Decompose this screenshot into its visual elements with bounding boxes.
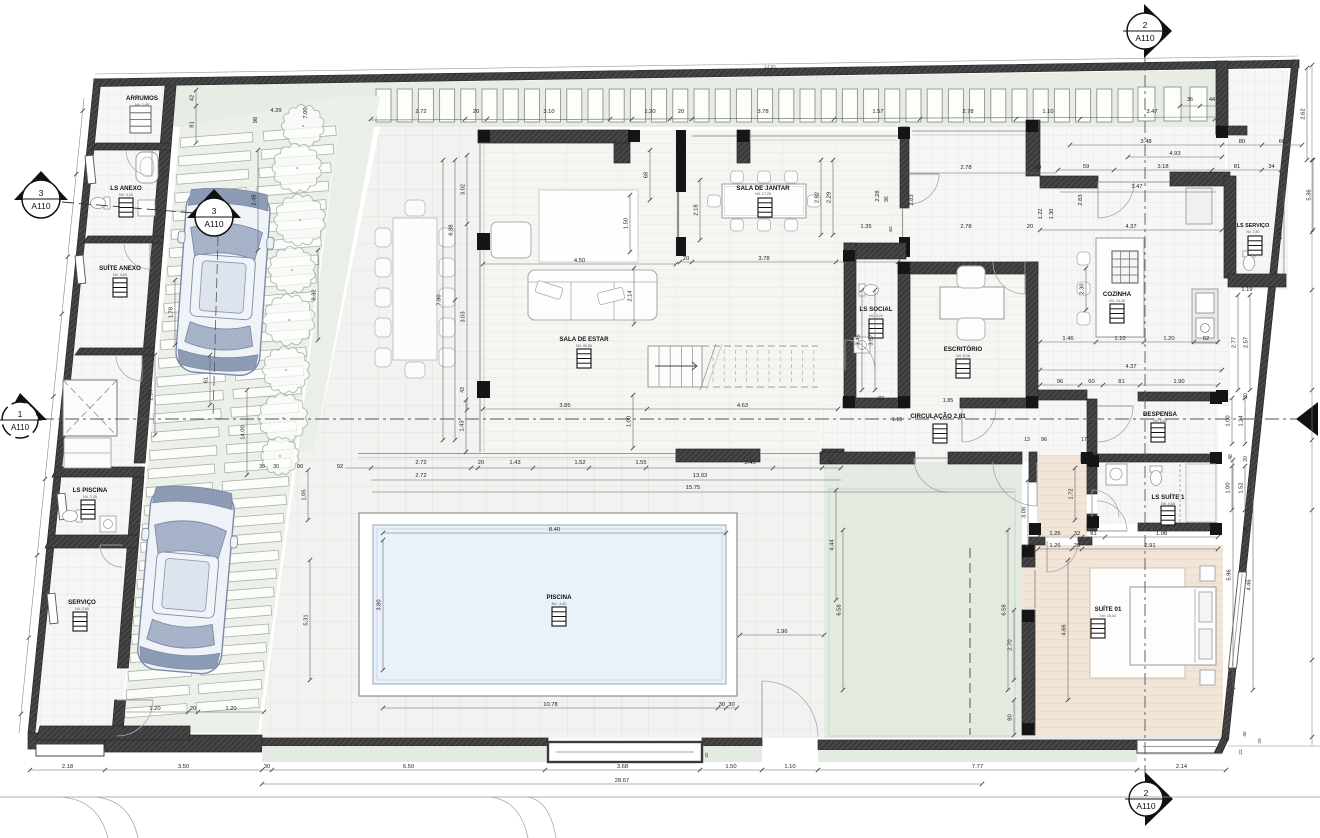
svg-text:1.57: 1.57 xyxy=(872,109,883,115)
svg-text:SUÍTE 01: SUÍTE 01 xyxy=(1095,605,1122,613)
svg-text:NV. 4,60: NV. 4,60 xyxy=(1161,502,1175,506)
svg-text:3.78: 3.78 xyxy=(757,109,768,115)
svg-text:4.37: 4.37 xyxy=(1125,224,1136,230)
svg-text:96: 96 xyxy=(1001,398,1007,404)
svg-text:34: 34 xyxy=(1268,164,1275,170)
svg-text:2.48: 2.48 xyxy=(252,194,258,205)
svg-text:2.18: 2.18 xyxy=(694,204,700,215)
svg-text:80: 80 xyxy=(1239,139,1245,145)
svg-text:3.50: 3.50 xyxy=(178,764,189,770)
svg-text:3.68: 3.68 xyxy=(617,764,628,770)
svg-text:82: 82 xyxy=(878,396,884,402)
svg-text:NV. 2,65: NV. 2,65 xyxy=(75,607,89,611)
svg-text:32: 32 xyxy=(1074,531,1080,537)
svg-text:20: 20 xyxy=(900,396,906,402)
svg-text:3.10: 3.10 xyxy=(543,109,554,115)
svg-text:1.19: 1.19 xyxy=(1241,287,1252,293)
svg-text:60: 60 xyxy=(1088,379,1094,385)
svg-text:LS ANEXO: LS ANEXO xyxy=(110,185,142,192)
svg-text:CIRCULAÇÃO 2,81: CIRCULAÇÃO 2,81 xyxy=(910,413,966,420)
svg-text:2.14: 2.14 xyxy=(1176,764,1188,770)
svg-text:1.10: 1.10 xyxy=(1114,336,1125,342)
svg-text:1.10: 1.10 xyxy=(1042,109,1053,115)
svg-text:1.43: 1.43 xyxy=(460,420,466,431)
svg-text:NV. 17,25: NV. 17,25 xyxy=(755,192,771,196)
svg-text:A110: A110 xyxy=(31,201,50,211)
svg-text:20: 20 xyxy=(1243,393,1249,399)
svg-text:3.57: 3.57 xyxy=(869,334,875,345)
svg-text:2.72: 2.72 xyxy=(415,473,426,479)
svg-text:2.72: 2.72 xyxy=(415,460,426,466)
svg-text:A110: A110 xyxy=(1136,801,1155,811)
svg-text:4.37: 4.37 xyxy=(1125,364,1136,370)
svg-text:6.50: 6.50 xyxy=(403,764,414,770)
svg-text:66: 66 xyxy=(1279,139,1285,145)
svg-text:20: 20 xyxy=(478,460,484,466)
svg-text:30: 30 xyxy=(273,464,279,470)
svg-text:3.08: 3.08 xyxy=(1022,507,1028,518)
svg-text:COZINHA: COZINHA xyxy=(1103,291,1132,298)
svg-text:62: 62 xyxy=(888,226,894,232)
svg-text:2.78: 2.78 xyxy=(962,109,973,115)
svg-text:NV. 2,04: NV. 2,04 xyxy=(1153,419,1167,423)
svg-text:17: 17 xyxy=(1081,437,1087,443)
svg-text:1.98: 1.98 xyxy=(1156,531,1167,537)
svg-text:20: 20 xyxy=(1027,224,1033,230)
svg-text:1.52: 1.52 xyxy=(574,460,585,466)
svg-text:2.78: 2.78 xyxy=(960,165,971,171)
svg-text:SALA DE JANTAR: SALA DE JANTAR xyxy=(736,185,790,192)
svg-text:10.78: 10.78 xyxy=(543,702,558,708)
svg-text:14.50: 14.50 xyxy=(764,64,776,69)
svg-text:5.96: 5.96 xyxy=(1227,569,1233,580)
svg-text:30: 30 xyxy=(264,764,270,770)
svg-text:DESPENSA: DESPENSA xyxy=(1143,411,1178,418)
svg-text:3.03: 3.03 xyxy=(461,311,467,322)
svg-text:1.78: 1.78 xyxy=(169,307,175,318)
svg-text:8.40: 8.40 xyxy=(549,527,560,533)
svg-text:2.78: 2.78 xyxy=(960,224,971,230)
svg-text:2.28: 2.28 xyxy=(875,190,881,201)
svg-text:22: 22 xyxy=(1238,749,1243,755)
svg-text:1.00: 1.00 xyxy=(1226,415,1232,426)
svg-text:4.44: 4.44 xyxy=(830,539,836,551)
svg-text:6.88: 6.88 xyxy=(449,224,455,235)
svg-text:8.32: 8.32 xyxy=(312,289,318,300)
svg-text:2.53: 2.53 xyxy=(1278,228,1284,239)
svg-text:3: 3 xyxy=(212,206,217,216)
svg-text:2.83: 2.83 xyxy=(909,194,915,205)
svg-text:3.45: 3.45 xyxy=(744,460,755,466)
svg-text:1.90: 1.90 xyxy=(1173,379,1184,385)
svg-text:2.57: 2.57 xyxy=(1244,337,1250,348)
svg-text:7.90: 7.90 xyxy=(437,294,443,305)
svg-text:1.26: 1.26 xyxy=(1049,531,1060,537)
svg-text:LS SOCIAL: LS SOCIAL xyxy=(859,306,892,313)
svg-text:1.10: 1.10 xyxy=(784,764,795,770)
svg-text:6.58: 6.58 xyxy=(1002,604,1008,615)
svg-text:61: 61 xyxy=(204,377,210,383)
svg-text:6.58: 6.58 xyxy=(837,604,843,615)
svg-text:NV. 1,85: NV. 1,85 xyxy=(135,103,149,107)
svg-text:1.46: 1.46 xyxy=(1062,336,1073,342)
svg-text:2.70: 2.70 xyxy=(1008,639,1014,650)
svg-text:1.22: 1.22 xyxy=(1038,209,1044,220)
svg-text:NV. 8,26: NV. 8,26 xyxy=(956,354,970,358)
svg-text:4.93: 4.93 xyxy=(1169,151,1180,157)
svg-text:90: 90 xyxy=(1035,165,1041,171)
svg-text:96: 96 xyxy=(1041,437,1047,443)
svg-text:3.47: 3.47 xyxy=(1146,109,1157,115)
svg-text:1.20: 1.20 xyxy=(644,109,655,115)
svg-text:30: 30 xyxy=(728,702,734,708)
svg-text:98: 98 xyxy=(253,117,259,123)
svg-text:3.02: 3.02 xyxy=(461,184,467,195)
svg-text:80: 80 xyxy=(1008,714,1014,720)
svg-text:42: 42 xyxy=(190,95,196,101)
svg-text:53: 53 xyxy=(849,396,855,402)
svg-text:1.20: 1.20 xyxy=(149,706,160,712)
svg-text:1.30: 1.30 xyxy=(1049,209,1055,220)
svg-text:4.50: 4.50 xyxy=(574,258,585,264)
svg-text:20: 20 xyxy=(678,109,684,115)
svg-text:2.77: 2.77 xyxy=(1232,337,1238,348)
svg-text:15.75: 15.75 xyxy=(686,485,701,491)
svg-text:SERVIÇO: SERVIÇO xyxy=(68,599,96,606)
svg-text:30: 30 xyxy=(719,702,725,708)
svg-text:A110: A110 xyxy=(11,423,30,432)
svg-text:13: 13 xyxy=(1024,437,1030,443)
svg-text:81: 81 xyxy=(190,121,196,127)
svg-text:20: 20 xyxy=(473,109,479,115)
svg-text:ESCRITÓRIO: ESCRITÓRIO xyxy=(944,345,983,353)
svg-text:2.91: 2.91 xyxy=(1144,543,1155,549)
svg-text:NV. 15,34: NV. 15,34 xyxy=(1100,614,1116,618)
svg-text:40: 40 xyxy=(1242,731,1247,737)
svg-text:14.00: 14.00 xyxy=(241,425,247,440)
svg-text:20: 20 xyxy=(1243,526,1249,532)
svg-text:3.78: 3.78 xyxy=(758,256,769,262)
svg-text:1.96: 1.96 xyxy=(776,629,787,635)
svg-text:2: 2 xyxy=(1144,788,1149,798)
svg-text:1.20: 1.20 xyxy=(1163,336,1174,342)
svg-text:NV. 3,25: NV. 3,25 xyxy=(119,193,133,197)
svg-text:2.62: 2.62 xyxy=(1301,108,1307,119)
svg-text:36: 36 xyxy=(1187,97,1193,103)
svg-text:20: 20 xyxy=(190,706,196,712)
svg-text:LS SERVIÇO: LS SERVIÇO xyxy=(1237,223,1270,229)
svg-text:4.46: 4.46 xyxy=(1247,579,1253,590)
svg-text:43: 43 xyxy=(460,387,466,393)
svg-text:2: 2 xyxy=(1143,20,1148,30)
svg-text:1.55: 1.55 xyxy=(635,460,646,466)
svg-text:1.24: 1.24 xyxy=(1239,415,1245,427)
svg-text:1.43: 1.43 xyxy=(509,460,520,466)
svg-text:42: 42 xyxy=(704,752,709,758)
svg-text:SUÍTE ANEXO: SUÍTE ANEXO xyxy=(99,264,141,272)
svg-text:92: 92 xyxy=(337,464,343,470)
svg-text:1.00: 1.00 xyxy=(1226,482,1232,493)
svg-text:5.31: 5.31 xyxy=(304,614,310,625)
svg-text:2.18: 2.18 xyxy=(62,764,73,770)
svg-text:NV. 2,40: NV. 2,40 xyxy=(1247,230,1260,234)
svg-text:1.50: 1.50 xyxy=(624,218,630,229)
svg-text:SALA DE ESTAR: SALA DE ESTAR xyxy=(559,336,609,343)
svg-text:1.52: 1.52 xyxy=(1239,482,1245,493)
svg-text:81: 81 xyxy=(1234,164,1240,170)
svg-text:2.72: 2.72 xyxy=(415,109,426,115)
svg-text:1.85: 1.85 xyxy=(943,398,954,404)
svg-text:81: 81 xyxy=(1118,379,1124,385)
svg-text:2.54: 2.54 xyxy=(149,389,155,401)
svg-text:1.00: 1.00 xyxy=(627,416,633,427)
svg-text:44: 44 xyxy=(1209,97,1215,103)
svg-text:30: 30 xyxy=(259,464,265,470)
svg-text:1.72: 1.72 xyxy=(1069,488,1075,499)
svg-text:NV. -1,40: NV. -1,40 xyxy=(552,602,567,606)
svg-text:20: 20 xyxy=(1243,456,1249,462)
svg-text:4.39: 4.39 xyxy=(270,108,281,114)
svg-text:LS PISCINA: LS PISCINA xyxy=(73,487,108,494)
svg-text:7.00: 7.00 xyxy=(303,107,309,118)
svg-text:62: 62 xyxy=(1203,336,1209,342)
svg-text:59: 59 xyxy=(1083,164,1089,170)
svg-text:2.29: 2.29 xyxy=(827,192,833,203)
svg-text:20: 20 xyxy=(1074,543,1080,549)
svg-text:3.80: 3.80 xyxy=(377,599,383,610)
svg-text:1.35: 1.35 xyxy=(860,224,871,230)
svg-text:3: 3 xyxy=(39,188,44,198)
svg-text:48: 48 xyxy=(1228,454,1234,460)
svg-text:2.82: 2.82 xyxy=(815,192,821,203)
svg-text:28.67: 28.67 xyxy=(615,778,630,784)
svg-text:4.66: 4.66 xyxy=(1062,624,1068,635)
svg-text:1.05: 1.05 xyxy=(302,489,308,500)
svg-text:1.15: 1.15 xyxy=(892,417,903,423)
svg-text:90: 90 xyxy=(297,464,303,470)
svg-text:LS SUÍTE 1: LS SUÍTE 1 xyxy=(1151,493,1185,501)
svg-text:52: 52 xyxy=(828,460,834,466)
svg-text:NV. 3,20: NV. 3,20 xyxy=(869,314,883,318)
svg-text:2.14: 2.14 xyxy=(628,290,634,302)
svg-text:3.48: 3.48 xyxy=(1140,139,1151,145)
svg-text:NV. 40,65: NV. 40,65 xyxy=(576,344,592,348)
svg-text:2.83: 2.83 xyxy=(1078,194,1084,205)
svg-text:7.77: 7.77 xyxy=(972,764,983,770)
svg-text:A110: A110 xyxy=(1135,33,1154,43)
svg-text:81: 81 xyxy=(1090,531,1096,537)
svg-text:68: 68 xyxy=(644,172,650,178)
svg-text:20: 20 xyxy=(1257,738,1262,744)
svg-text:96: 96 xyxy=(1057,379,1063,385)
svg-text:3.45: 3.45 xyxy=(856,334,862,345)
svg-text:ARRUMOS: ARRUMOS xyxy=(126,95,158,102)
svg-text:A110: A110 xyxy=(204,219,223,229)
svg-text:NV. 14,30: NV. 14,30 xyxy=(1109,299,1125,303)
svg-text:3.18: 3.18 xyxy=(1157,164,1168,170)
svg-text:4.63: 4.63 xyxy=(737,403,748,409)
svg-text:NV. 2,05: NV. 2,05 xyxy=(83,495,97,499)
svg-text:PISCINA: PISCINA xyxy=(546,594,572,601)
svg-text:1: 1 xyxy=(18,409,23,419)
svg-text:3.85: 3.85 xyxy=(559,403,570,409)
svg-text:2.30: 2.30 xyxy=(1080,283,1086,294)
svg-text:13.03: 13.03 xyxy=(693,473,708,479)
svg-text:1.20: 1.20 xyxy=(225,706,236,712)
svg-text:3.47: 3.47 xyxy=(1131,184,1142,190)
svg-text:20: 20 xyxy=(683,256,689,262)
svg-text:96: 96 xyxy=(884,196,890,202)
svg-text:5.36: 5.36 xyxy=(1307,189,1313,200)
svg-text:1.50: 1.50 xyxy=(725,764,736,770)
svg-text:NV. 4,64: NV. 4,64 xyxy=(113,273,127,277)
svg-text:1.26: 1.26 xyxy=(1049,543,1060,549)
